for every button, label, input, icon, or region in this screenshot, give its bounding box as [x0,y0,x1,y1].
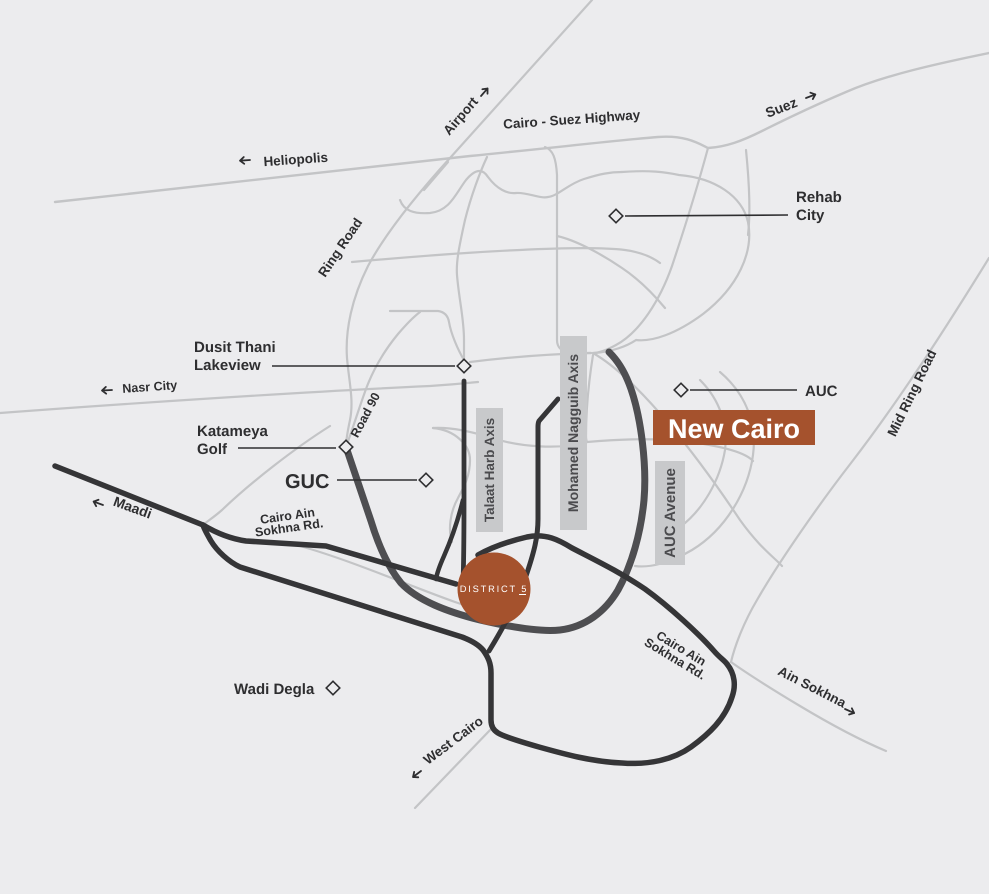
svg-text:Talaat Harb Axis: Talaat Harb Axis [482,418,497,522]
svg-text:Dusit Thani: Dusit Thani [194,339,276,356]
svg-text:Rehab: Rehab [796,189,842,206]
svg-text:Lakeview: Lakeview [194,357,261,374]
svg-text:City: City [796,207,825,224]
svg-text:Mohamed Nagguib Axis: Mohamed Nagguib Axis [565,354,581,512]
svg-text:DISTRICT 5: DISTRICT 5 [460,584,528,594]
svg-text:Wadi Degla: Wadi Degla [234,681,315,698]
svg-text:AUC Avenue: AUC Avenue [662,468,679,558]
svg-text:Katameya: Katameya [197,423,269,440]
svg-text:New Cairo: New Cairo [668,414,800,444]
svg-text:Golf: Golf [197,441,228,458]
svg-text:GUC: GUC [285,471,329,493]
svg-text:AUC: AUC [805,383,838,400]
